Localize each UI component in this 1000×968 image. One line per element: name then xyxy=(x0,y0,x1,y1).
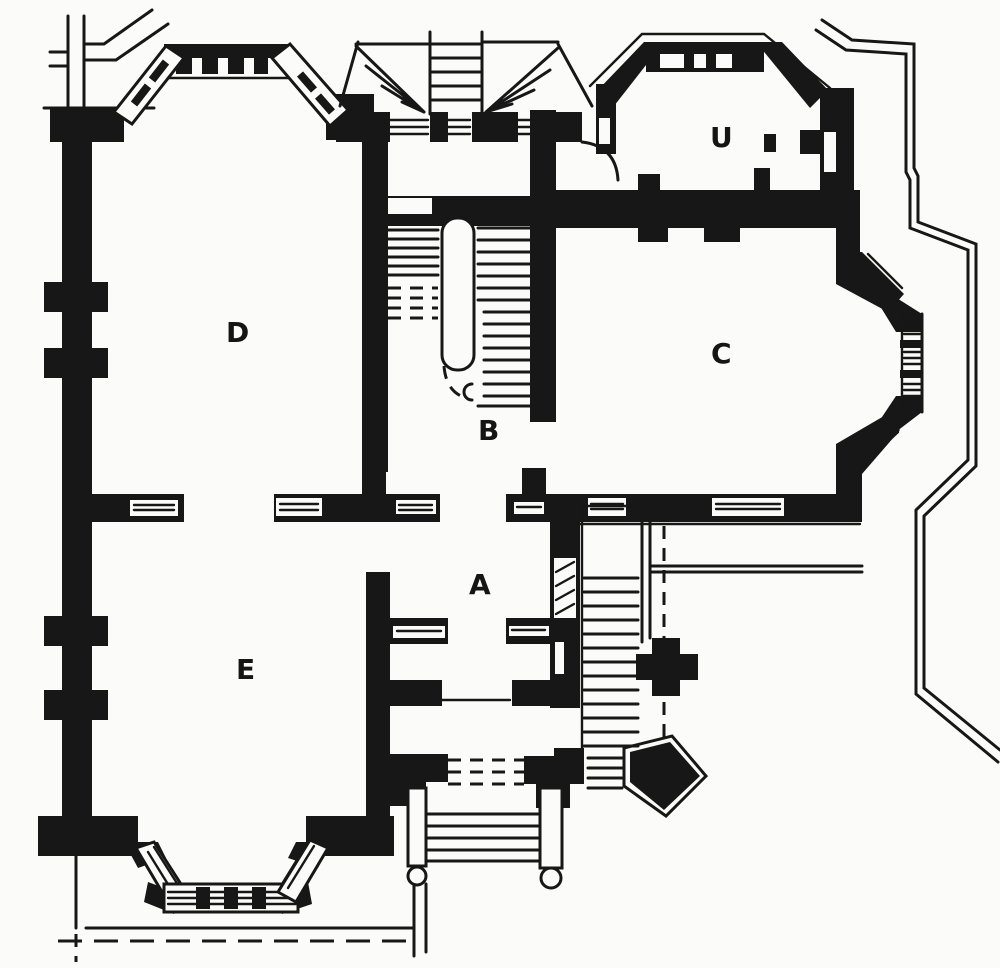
stair-curtail xyxy=(464,384,472,400)
room-c-north-wall xyxy=(556,190,860,228)
northwest-corner-pier xyxy=(50,108,124,142)
step-cheek xyxy=(408,788,426,866)
step-newel xyxy=(541,868,561,888)
diagonal-buttress xyxy=(630,742,700,810)
west-wall xyxy=(62,140,92,824)
room-label-c: C xyxy=(711,337,732,370)
east-wall xyxy=(836,470,862,522)
west-wall-pier xyxy=(44,690,108,720)
south-terrace-lines xyxy=(556,524,862,572)
entrance-jamb xyxy=(388,680,442,706)
room-label-d: D xyxy=(226,316,249,349)
cross-pier xyxy=(652,638,680,696)
floor-plan-drawing: A B C D E U xyxy=(0,0,1000,968)
step-cheek xyxy=(540,788,562,868)
west-wall-pier xyxy=(44,348,108,378)
main-staircase xyxy=(388,218,530,406)
fireplace-jamb xyxy=(764,134,776,152)
stair-hall-east-wall xyxy=(530,110,556,422)
room-label-e: E xyxy=(236,653,255,686)
room-label-u: U xyxy=(710,121,733,154)
east-wall xyxy=(836,208,860,258)
porch-jamb xyxy=(388,754,448,782)
west-wall-pier xyxy=(44,616,108,646)
stair-newel-well xyxy=(442,218,474,370)
room-a-west-wall xyxy=(366,572,390,826)
step-newel xyxy=(408,867,426,885)
hall-west-wall xyxy=(362,112,388,472)
fireplace-jamb xyxy=(800,130,822,154)
window-symbols xyxy=(114,44,922,912)
south-entrance-steps xyxy=(408,700,562,888)
room-label-b: B xyxy=(478,414,499,447)
room-label-a: A xyxy=(469,568,491,601)
west-wall-pier xyxy=(44,282,108,312)
room-u-northeast-cant xyxy=(756,42,828,108)
floor-plan-page: A B C D E U xyxy=(0,0,1000,968)
room-a-west-wall xyxy=(366,494,390,522)
southwest-corner-pier xyxy=(38,816,138,856)
entrance-jamb xyxy=(512,680,554,706)
